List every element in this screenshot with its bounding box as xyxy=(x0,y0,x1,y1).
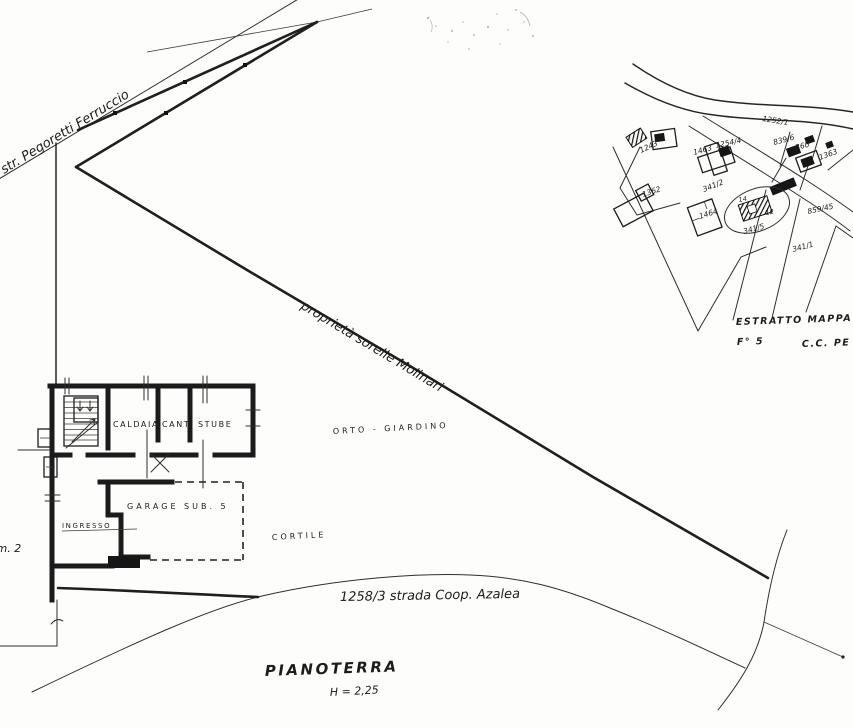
room-label-garage: GARAGE SUB. 5 xyxy=(127,502,229,511)
garage-dashed-outline xyxy=(150,482,243,560)
street-label: str. Pegoretti Ferruccio xyxy=(0,87,132,177)
parcel-label: 12 xyxy=(765,208,775,217)
parcel-label: 360 xyxy=(794,140,810,152)
property-label: proprietà sorelle Molinari xyxy=(297,298,446,395)
map-extract-title: ESTRATTO MAPPA xyxy=(736,313,853,328)
room-label-ingresso: INGRESSO xyxy=(62,522,111,530)
parcel-label: 1463 xyxy=(692,143,713,157)
parcel-label: 341/5 xyxy=(742,222,765,236)
parcel-label: 14 xyxy=(738,195,748,204)
room-label-stube: STUBE xyxy=(198,420,232,429)
east-parcel-line xyxy=(718,530,787,710)
boundary-extension-line xyxy=(147,9,372,52)
scan-speckles xyxy=(427,9,534,50)
room-label-caldaia: CALDAIA xyxy=(113,420,159,429)
parcel-label: 341/1 xyxy=(791,240,814,254)
title-block: PIANOTERRA H = 2,25 xyxy=(265,657,399,699)
road-group: 1258/3 strada Coop. Azalea xyxy=(32,530,845,710)
parcel-label: 341/2 xyxy=(701,177,725,194)
parcel-label: 1464 xyxy=(698,206,719,221)
scanned-site-plan: str. Pegoretti Ferruccio proprietà sorel… xyxy=(0,0,853,728)
document-page: str. Pegoretti Ferruccio proprietà sorel… xyxy=(0,0,853,728)
southwest-boundary-line xyxy=(0,600,57,646)
floor-plan-group: CALDAIA CANT. STUBE GARAGE SUB. 5 INGRES… xyxy=(18,376,260,600)
entry-porch xyxy=(108,556,140,568)
map-road-upper xyxy=(633,64,853,112)
floor-title: PIANOTERRA xyxy=(265,657,399,680)
map-extract-group: 1243 1463 1254/4 839/6 360 1363 1252/1 1… xyxy=(611,64,853,350)
south-boundary-line xyxy=(58,588,258,597)
map-extract-caption: ESTRATTO MAPPA F° 5 C.C. PE xyxy=(736,313,853,350)
survey-point-dots xyxy=(113,63,247,115)
map-extract-commune: C.C. PE xyxy=(802,337,851,350)
parcel-label: 1363 xyxy=(818,147,839,162)
street-line xyxy=(0,0,300,182)
wall-garage-west xyxy=(108,482,148,557)
garden-label: ORTO - GIARDINO xyxy=(333,421,449,436)
parcel-label: 1252/1 xyxy=(762,114,789,127)
road-label: 1258/3 strada Coop. Azalea xyxy=(340,587,520,605)
floor-height-note: H = 2,25 xyxy=(329,683,379,699)
room-label-cantina: CANT. xyxy=(162,420,194,429)
line-end-dot xyxy=(841,655,844,658)
staircase xyxy=(64,396,98,448)
east-fork-line xyxy=(764,622,843,657)
property-boundary-group: proprietà sorelle Molinari xyxy=(76,167,768,578)
courtyard-label: CORTILE xyxy=(272,530,327,542)
map-road-lower xyxy=(625,83,853,129)
map-extract-sheet: F° 5 xyxy=(737,336,765,348)
map-parcel-labels: 1243 1463 1254/4 839/6 360 1363 1252/1 1… xyxy=(638,114,839,254)
parcel-ref-label: p.m. 2 xyxy=(0,542,21,555)
parcel-label: 839/6 xyxy=(772,133,795,147)
